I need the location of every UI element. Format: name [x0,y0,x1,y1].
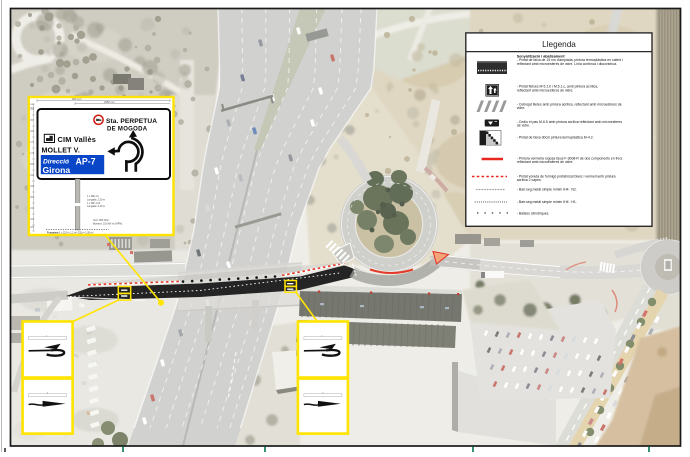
svg-text:CIM Vallès: CIM Vallès [58,135,97,144]
svg-text:- Balises cilíndriques.: - Balises cilíndriques. [517,211,550,215]
svg-text:- Barr.seg.metàl simple mínim: - Barr.seg.metàl simple mínim IH4 : N2. [517,188,577,192]
svg-text:178: 178 [30,152,35,155]
svg-text:Girona: Girona [43,165,71,175]
svg-text:164: 164 [30,130,35,133]
svg-text:227: 227 [30,226,35,229]
svg-text:- Barr.seg.metàl simple mínim: - Barr.seg.metàl simple mínim IH4 : H1. [517,200,577,204]
svg-text:185: 185 [30,163,35,166]
svg-text:de vidre.: de vidre. [517,124,530,128]
svg-text:reflectant amb microesferes de: reflectant amb microesferes de vidre. [517,160,574,164]
svg-text:Llegenda: Llegenda [542,40,576,49]
svg-text:vidre.: vidre. [517,106,525,110]
svg-text:Fonament 1 x 22,9 x 1,2 m³ (22: Fonament 1 x 22,9 x 1,2 m³ (22t) = 1,05 … [47,231,94,234]
svg-text:220: 220 [30,218,35,221]
svg-text:157: 157 [30,119,35,122]
svg-text:AP-7: AP-7 [76,157,96,167]
svg-text:Longada: 2,30 m: Longada: 2,30 m [87,205,105,208]
svg-text:Sta. PERPETUA: Sta. PERPETUA [106,118,157,125]
svg-text:206: 206 [30,196,35,199]
svg-text:MOLLET V.: MOLLET V. [42,147,81,155]
svg-text:- Cediu el pas M-6.5 amb pintu: - Cediu el pas M-6.5 amb pintura acrílic… [517,120,623,124]
svg-text:2950 mm: 2950 mm [104,100,115,104]
svg-text:reflectant amb microesferes de: reflectant amb microesferes de vidre. Lí… [517,62,617,66]
svg-text:Moment: 23,6 kN·m (IAP%): Moment: 23,6 kN·m (IAP%) [93,222,122,225]
svg-text:192: 192 [30,174,35,177]
svg-text:199: 199 [30,185,35,188]
svg-text:DE MOGODA: DE MOGODA [107,127,148,133]
svg-text:- Cebrejat illetes amb pintura: - Cebrejat illetes amb pintura acrílica,… [517,102,622,106]
svg-text:acrílica 2 capes.: acrílica 2 capes. [517,178,542,182]
svg-text:960 mm: 960 mm [72,97,81,101]
svg-text:171: 171 [30,141,35,144]
svg-text:- Pintat de faixa 30cm pintura: - Pintat de faixa 30cm pintura termoplàs… [517,135,594,139]
svg-text:213: 213 [30,207,35,210]
svg-text:mm: mm [30,107,34,109]
svg-text:reflectant amb microesferes de: reflectant amb microesferes de vidre. [517,88,574,92]
